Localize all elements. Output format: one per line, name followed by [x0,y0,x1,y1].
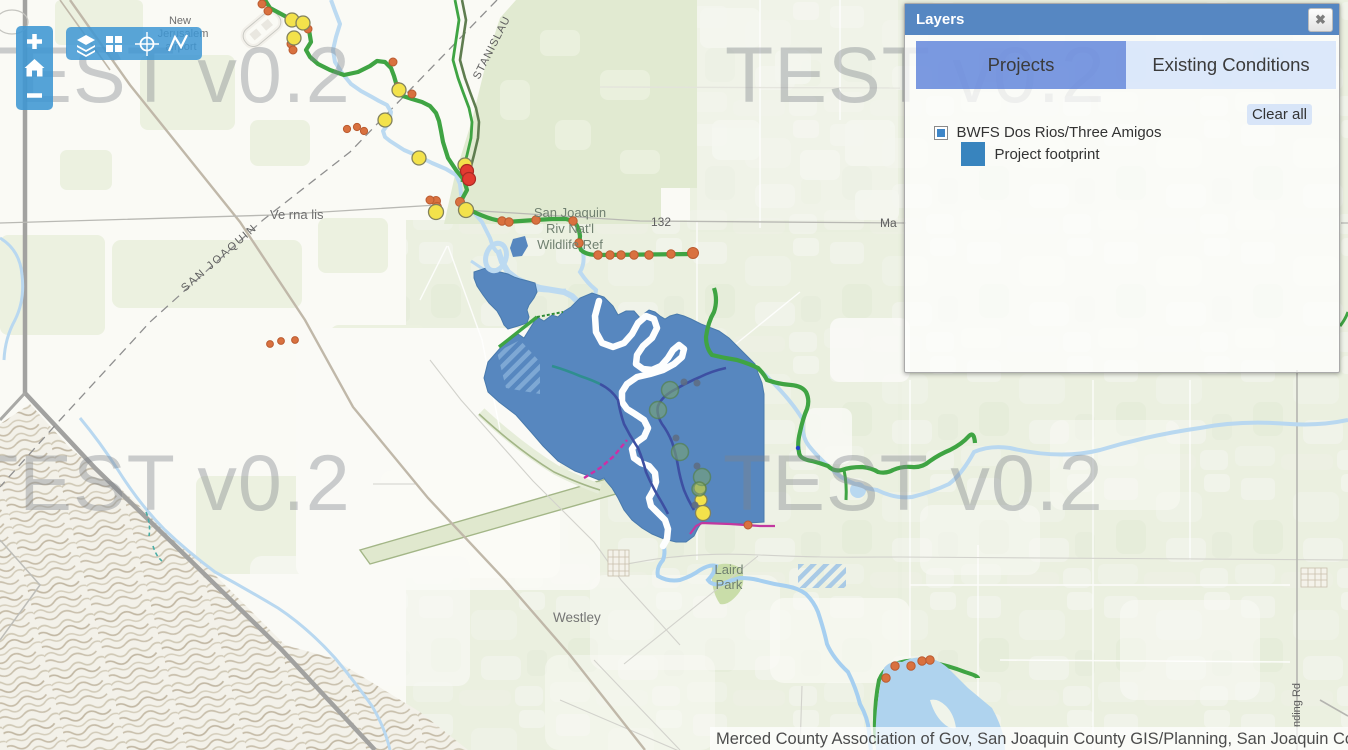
svg-text:Park: Park [716,577,743,592]
svg-text:nding Rd: nding Rd [1291,683,1303,727]
svg-text:New: New [169,15,191,27]
svg-text:San Joaquin: San Joaquin [534,205,606,220]
svg-text:Laird: Laird [715,562,744,577]
svg-text:Ve rna lis: Ve rna lis [270,207,324,222]
svg-text:Riv Nat'l: Riv Nat'l [546,221,594,236]
svg-text:TEST v0.2: TEST v0.2 [0,438,351,527]
svg-text:132: 132 [651,215,671,229]
svg-text:Westley: Westley [553,610,601,625]
svg-text:Wildlife Ref: Wildlife Ref [537,237,603,252]
svg-text:TEST v0.2: TEST v0.2 [723,438,1104,527]
svg-text:Ma: Ma [880,216,897,230]
